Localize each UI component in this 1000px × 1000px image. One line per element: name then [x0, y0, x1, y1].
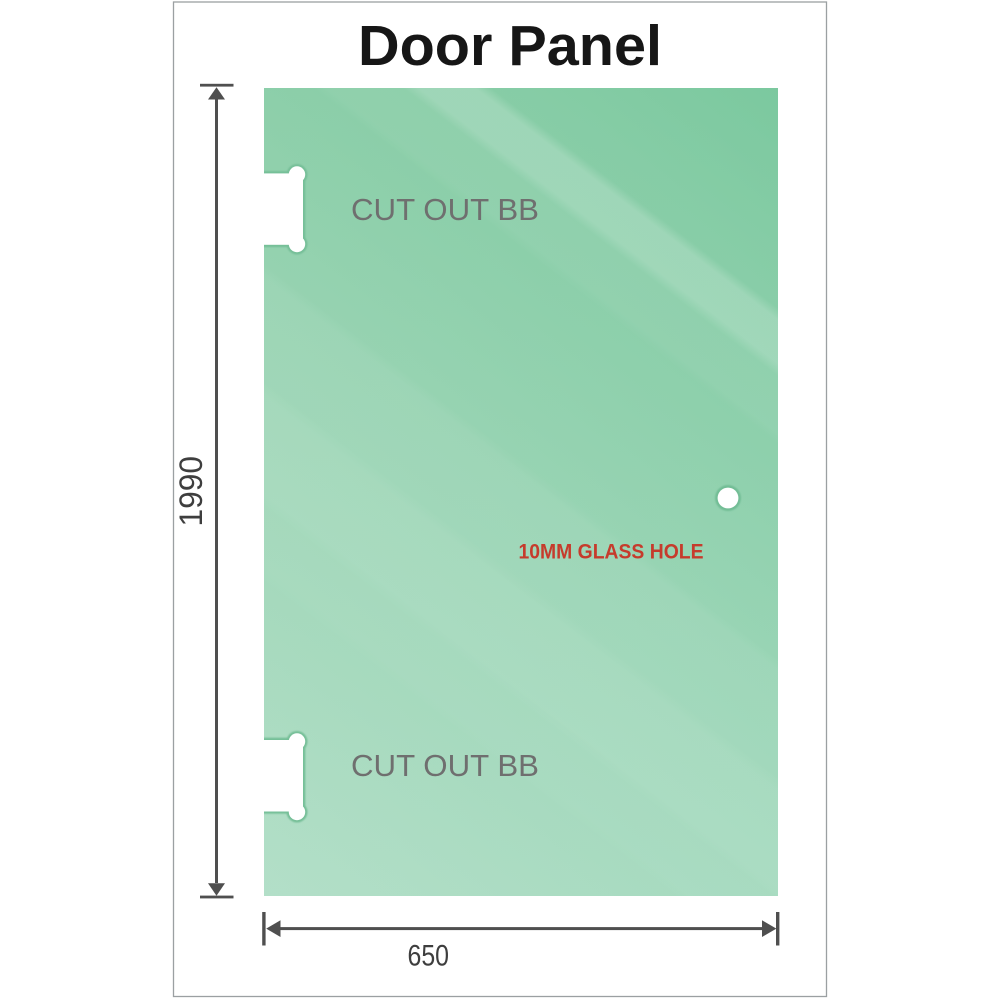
svg-text:1990: 1990 — [173, 456, 209, 527]
svg-text:10MM GLASS HOLE: 10MM GLASS HOLE — [519, 541, 704, 564]
svg-text:CUT OUT BB: CUT OUT BB — [351, 192, 539, 227]
svg-text:650: 650 — [408, 940, 450, 973]
svg-text:Door Panel: Door Panel — [358, 14, 662, 78]
svg-text:CUT OUT BB: CUT OUT BB — [351, 748, 539, 783]
